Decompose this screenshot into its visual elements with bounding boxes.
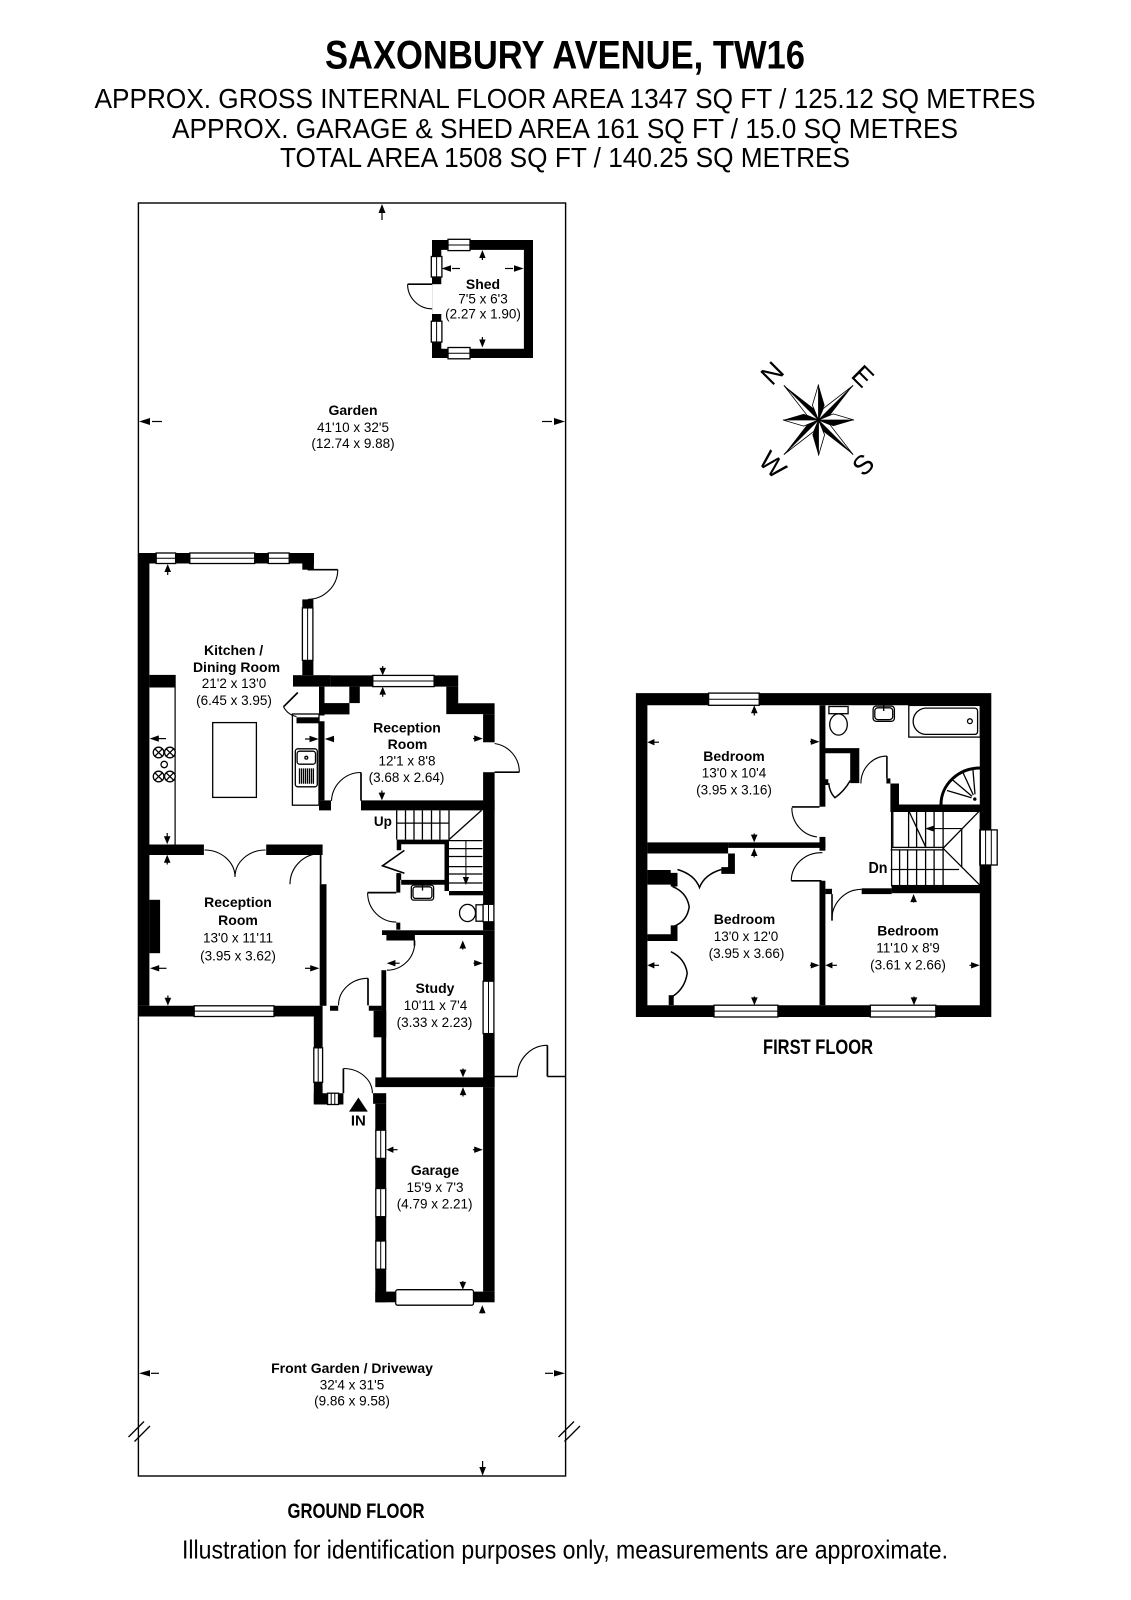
svg-text:FIRST FLOOR: FIRST FLOOR xyxy=(763,1036,873,1059)
svg-text:Study: Study xyxy=(416,980,455,996)
svg-text:Illustration for identificatio: Illustration for identification purposes… xyxy=(182,1535,948,1565)
svg-text:11'10 x 8'9: 11'10 x 8'9 xyxy=(876,940,939,955)
svg-text:(3.95 x 3.62): (3.95 x 3.62) xyxy=(200,948,276,963)
svg-text:13'0 x 11'11: 13'0 x 11'11 xyxy=(203,930,273,945)
svg-text:Bedroom: Bedroom xyxy=(703,748,764,764)
svg-text:Garage: Garage xyxy=(411,1162,459,1178)
svg-text:(4.79 x 2.21): (4.79 x 2.21) xyxy=(397,1196,473,1211)
svg-text:GROUND FLOOR: GROUND FLOOR xyxy=(288,1500,425,1523)
svg-text:15'9 x 7'3: 15'9 x 7'3 xyxy=(407,1180,464,1195)
svg-text:21'2 x 13'0: 21'2 x 13'0 xyxy=(202,676,266,691)
svg-text:(3.68 x 2.64): (3.68 x 2.64) xyxy=(369,770,445,785)
svg-text:7'5 x 6'3: 7'5 x 6'3 xyxy=(458,292,507,307)
svg-text:Room: Room xyxy=(388,736,428,752)
svg-text:(2.27 x 1.90): (2.27 x 1.90) xyxy=(445,307,521,322)
svg-text:Reception: Reception xyxy=(204,894,272,910)
svg-text:IN: IN xyxy=(351,1113,366,1130)
svg-text:13'0 x 12'0: 13'0 x 12'0 xyxy=(714,929,778,944)
svg-text:Bedroom: Bedroom xyxy=(877,922,938,938)
svg-text:(3.95 x 3.66): (3.95 x 3.66) xyxy=(709,946,785,961)
svg-text:SAXONBURY AVENUE, TW16: SAXONBURY AVENUE, TW16 xyxy=(325,34,805,78)
svg-text:Up: Up xyxy=(374,814,392,829)
svg-text:12'1 x 8'8: 12'1 x 8'8 xyxy=(379,754,436,769)
svg-text:10'11 x 7'4: 10'11 x 7'4 xyxy=(404,998,468,1013)
svg-text:(3.61 x 2.66): (3.61 x 2.66) xyxy=(870,957,946,972)
svg-text:41'10 x 32'5: 41'10 x 32'5 xyxy=(317,420,389,435)
svg-text:(3.95 x 3.16): (3.95 x 3.16) xyxy=(696,782,772,797)
svg-text:Bedroom: Bedroom xyxy=(714,911,775,927)
svg-text:Dn: Dn xyxy=(869,860,888,877)
svg-text:(9.86 x 9.58): (9.86 x 9.58) xyxy=(314,1393,390,1408)
svg-text:Garden: Garden xyxy=(328,402,377,418)
svg-text:13'0 x 10'4: 13'0 x 10'4 xyxy=(702,765,767,780)
svg-text:TOTAL AREA 1508 SQ FT / 140.25: TOTAL AREA 1508 SQ FT / 140.25 SQ METRES xyxy=(280,142,850,173)
svg-text:Front Garden / Driveway: Front Garden / Driveway xyxy=(271,1360,433,1376)
svg-text:(6.45 x 3.95): (6.45 x 3.95) xyxy=(196,693,272,708)
svg-text:APPROX. GARAGE & SHED AREA 161: APPROX. GARAGE & SHED AREA 161 SQ FT / 1… xyxy=(172,113,958,144)
svg-text:APPROX. GROSS INTERNAL FLOOR A: APPROX. GROSS INTERNAL FLOOR AREA 1347 S… xyxy=(95,83,1036,114)
svg-text:32'4 x 31'5: 32'4 x 31'5 xyxy=(320,1377,384,1392)
svg-text:Kitchen /: Kitchen / xyxy=(204,642,263,658)
svg-text:(12.74 x 9.88): (12.74 x 9.88) xyxy=(311,436,394,451)
svg-text:(3.33 x 2.23): (3.33 x 2.23) xyxy=(397,1015,473,1030)
svg-text:Dining Room: Dining Room xyxy=(193,659,280,675)
svg-text:Shed: Shed xyxy=(466,276,500,292)
svg-text:Reception: Reception xyxy=(373,720,441,736)
svg-text:Room: Room xyxy=(218,912,258,928)
